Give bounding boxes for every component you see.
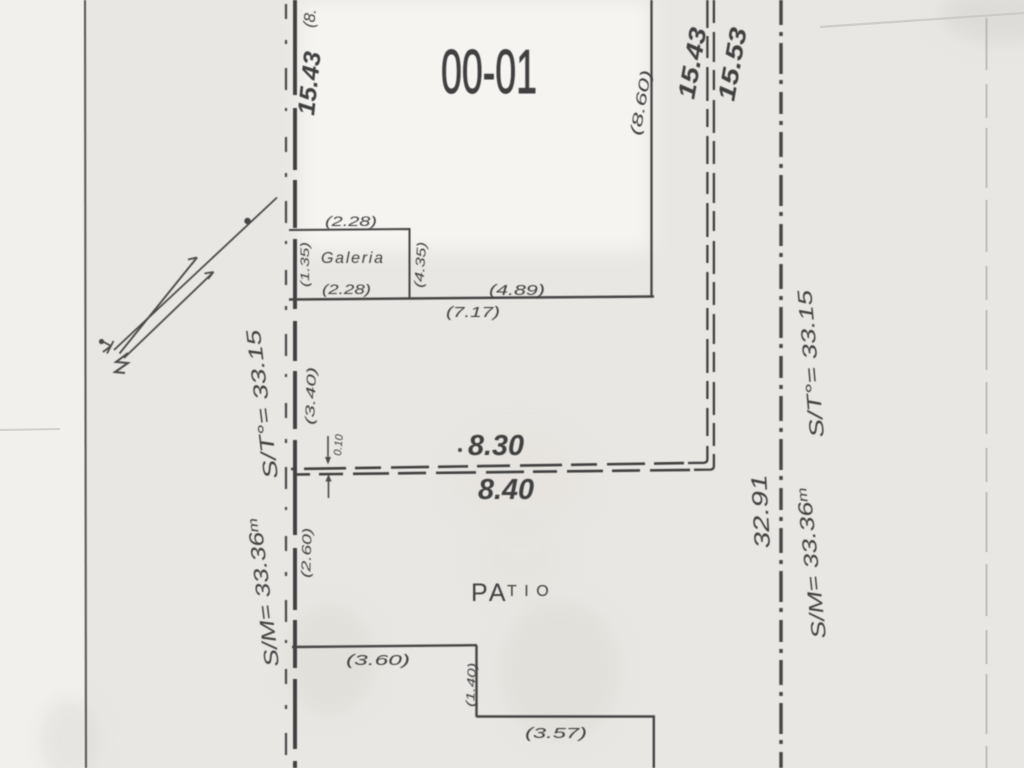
svg-text:0.10: 0.10: [332, 433, 346, 456]
svg-text:8.40: 8.40: [478, 474, 534, 506]
svg-text:(3.40): (3.40): [302, 367, 319, 425]
svg-text:PA: PA: [471, 579, 509, 607]
svg-text:(1.40): (1.40): [463, 662, 479, 707]
svg-text:(2.28): (2.28): [322, 281, 371, 297]
svg-text:(1.35): (1.35): [298, 242, 312, 287]
svg-text:(2.60): (2.60): [298, 528, 315, 578]
svg-text:(7.17): (7.17): [446, 304, 500, 321]
svg-text:(3.57): (3.57): [525, 725, 587, 742]
svg-text:TIO: TIO: [507, 583, 556, 600]
svg-text:00-01: 00-01: [441, 38, 537, 107]
svg-text:(3.60): (3.60): [346, 652, 410, 669]
svg-text:8.30: 8.30: [468, 430, 524, 462]
svg-text:(4.35): (4.35): [411, 241, 429, 288]
svg-text:(2.28): (2.28): [325, 213, 377, 229]
svg-text:(8.: (8.: [301, 8, 320, 28]
svg-text:Galeria: Galeria: [321, 250, 383, 267]
svg-text:(4.89): (4.89): [489, 282, 545, 299]
svg-text:32.91: 32.91: [746, 474, 775, 549]
